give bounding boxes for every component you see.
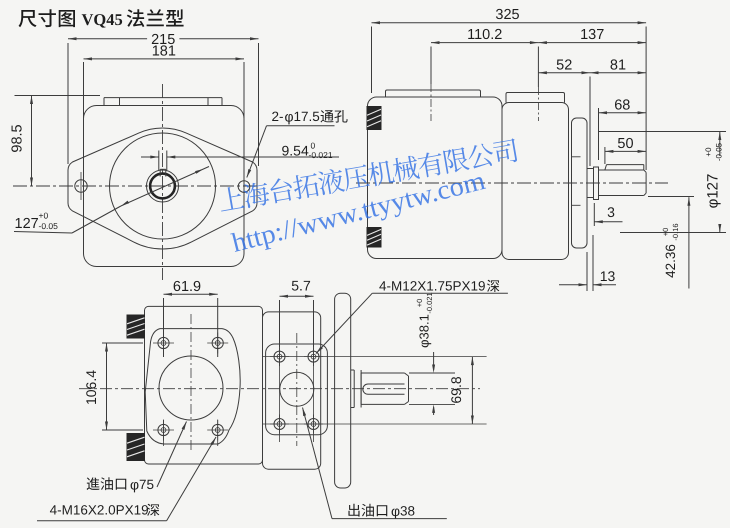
svg-text:+0: +0 [415,299,424,308]
svg-text:VQ45: VQ45 [82,10,123,29]
svg-text:110.2: 110.2 [467,27,502,43]
svg-text:-0.05: -0.05 [39,221,59,231]
svg-text:-0.021: -0.021 [425,292,434,313]
svg-text:-0.16: -0.16 [671,223,680,240]
svg-text:+0: +0 [661,228,670,237]
svg-text:13: 13 [600,268,616,284]
svg-text:81: 81 [610,57,626,73]
svg-text:75: 75 [139,477,154,492]
svg-text:φ: φ [285,109,294,125]
svg-text:+0: +0 [704,147,713,157]
svg-text:38: 38 [400,504,415,519]
svg-text:137: 137 [580,27,604,43]
svg-text:68: 68 [614,97,630,113]
svg-text:9.54: 9.54 [282,143,309,159]
svg-text:42.36: 42.36 [663,244,678,278]
svg-text:69.8: 69.8 [448,376,464,403]
svg-text:52: 52 [556,57,572,73]
svg-text:φ: φ [130,477,139,493]
svg-text:0: 0 [311,141,316,151]
svg-text:325: 325 [495,7,519,23]
svg-text:4-M12X1.75PX19: 4-M12X1.75PX19 [379,279,486,294]
svg-text:181: 181 [152,43,176,59]
svg-text:φ: φ [391,503,400,519]
svg-text:127: 127 [15,216,39,232]
svg-text:50: 50 [617,136,633,152]
svg-text:61.9: 61.9 [173,279,201,295]
svg-text:-0.021: -0.021 [309,150,333,160]
svg-text:4-M16X2.0PX19: 4-M16X2.0PX19 [50,503,149,518]
svg-text:2-: 2- [272,109,284,124]
svg-text:φ38.1: φ38.1 [417,314,432,348]
svg-text:98.5: 98.5 [10,124,26,152]
svg-text:+0: +0 [39,211,49,221]
svg-text:17.5: 17.5 [294,109,320,124]
svg-text:3: 3 [607,204,615,220]
svg-text:106.4: 106.4 [83,370,99,405]
svg-text:5.7: 5.7 [291,277,311,293]
svg-text:φ127: φ127 [705,174,722,209]
svg-text:-0.05: -0.05 [715,142,724,161]
